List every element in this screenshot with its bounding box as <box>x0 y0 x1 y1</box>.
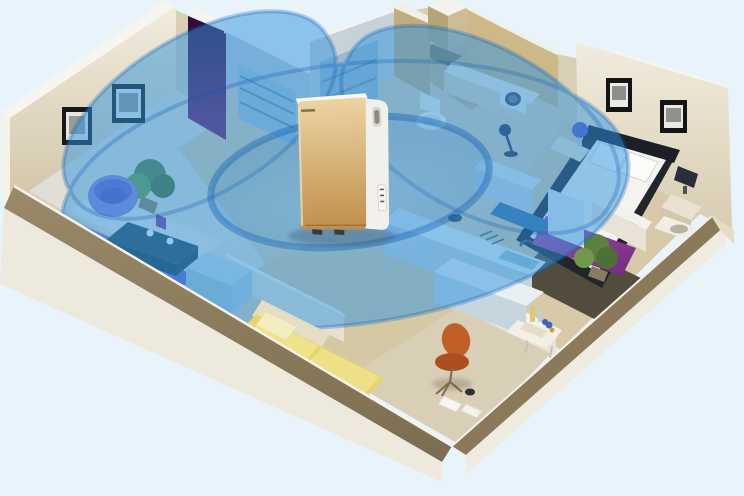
control-panel <box>378 185 387 211</box>
purifier-foot <box>334 229 344 235</box>
purifier-foot <box>312 229 322 235</box>
picture-frame <box>606 78 632 112</box>
control-mark <box>380 201 384 203</box>
handle-icon <box>374 110 379 124</box>
wall-end-edge <box>2 112 10 204</box>
lamp-stem <box>683 186 687 194</box>
plant-foliage <box>574 248 594 268</box>
air-purifier <box>288 92 396 246</box>
plant-foliage <box>596 247 618 269</box>
purifier-body <box>296 92 393 236</box>
brand-logo-mark <box>301 109 315 112</box>
apartment-coverage-illustration <box>0 0 744 496</box>
purifier-gold-panel <box>297 97 371 231</box>
picture-frame <box>660 100 687 133</box>
bottle <box>530 306 535 322</box>
figurine <box>550 328 555 333</box>
control-strip <box>378 185 387 211</box>
illustration-stage <box>0 0 744 496</box>
control-mark <box>380 195 384 197</box>
frame-photo <box>666 108 681 122</box>
frame-photo <box>612 86 626 100</box>
bowl <box>670 225 688 234</box>
control-mark <box>380 189 384 191</box>
small-dark-item <box>465 389 475 396</box>
figurine <box>542 319 548 325</box>
bottle <box>538 310 542 322</box>
